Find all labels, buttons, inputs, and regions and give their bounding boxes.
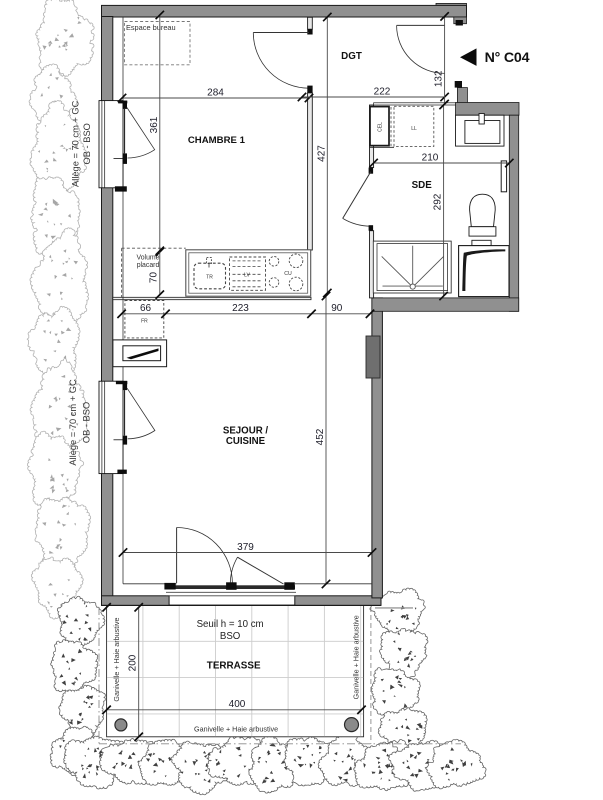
svg-text:OB - BSO: OB - BSO xyxy=(82,123,92,164)
svg-text:Allège = 70 cm + GC: Allège = 70 cm + GC xyxy=(68,379,78,466)
svg-text:TERRASSE: TERRASSE xyxy=(207,660,261,671)
svg-text:SDE: SDE xyxy=(412,180,433,191)
svg-text:361: 361 xyxy=(149,116,160,133)
svg-text:222: 222 xyxy=(374,87,391,98)
svg-text:LL: LL xyxy=(411,126,417,132)
svg-text:Espace bureau: Espace bureau xyxy=(126,23,176,32)
svg-text:N° C04: N° C04 xyxy=(485,50,530,66)
svg-text:Ganivelle + Haie arbustive: Ganivelle + Haie arbustive xyxy=(352,615,361,699)
svg-text:200: 200 xyxy=(128,654,139,671)
svg-text:FR: FR xyxy=(141,319,148,325)
svg-text:CHAMBRE 1: CHAMBRE 1 xyxy=(188,135,246,146)
svg-text:BSO: BSO xyxy=(220,631,241,642)
svg-text:Seuil h = 10 cm: Seuil h = 10 cm xyxy=(197,619,264,630)
svg-text:292: 292 xyxy=(432,193,443,210)
svg-text:OB - BSO: OB - BSO xyxy=(81,402,91,443)
svg-text:400: 400 xyxy=(229,699,246,710)
svg-text:DGT: DGT xyxy=(341,51,362,62)
svg-text:Ganivelle + Haie arbustive: Ganivelle + Haie arbustive xyxy=(194,724,278,733)
svg-text:90: 90 xyxy=(331,303,343,314)
svg-text:TR: TR xyxy=(206,275,213,281)
svg-text:452: 452 xyxy=(315,428,326,445)
svg-text:132: 132 xyxy=(433,70,444,87)
svg-text:placard: placard xyxy=(137,262,160,269)
svg-text:66: 66 xyxy=(140,303,152,314)
svg-text:210: 210 xyxy=(422,153,439,164)
svg-text:CUISINE: CUISINE xyxy=(226,436,266,447)
svg-text:CU: CU xyxy=(284,271,292,277)
svg-text:427: 427 xyxy=(316,145,327,162)
svg-text:Allège = 70 cm + GC: Allège = 70 cm + GC xyxy=(70,100,80,187)
svg-text:70: 70 xyxy=(149,272,160,284)
svg-text:379: 379 xyxy=(237,542,254,553)
svg-text:CEL: CEL xyxy=(378,122,384,132)
svg-text:LV: LV xyxy=(244,272,250,278)
svg-text:Ganivelle + Haie arbustive: Ganivelle + Haie arbustive xyxy=(112,618,121,702)
svg-text:284: 284 xyxy=(207,88,224,99)
svg-text:223: 223 xyxy=(232,303,249,314)
